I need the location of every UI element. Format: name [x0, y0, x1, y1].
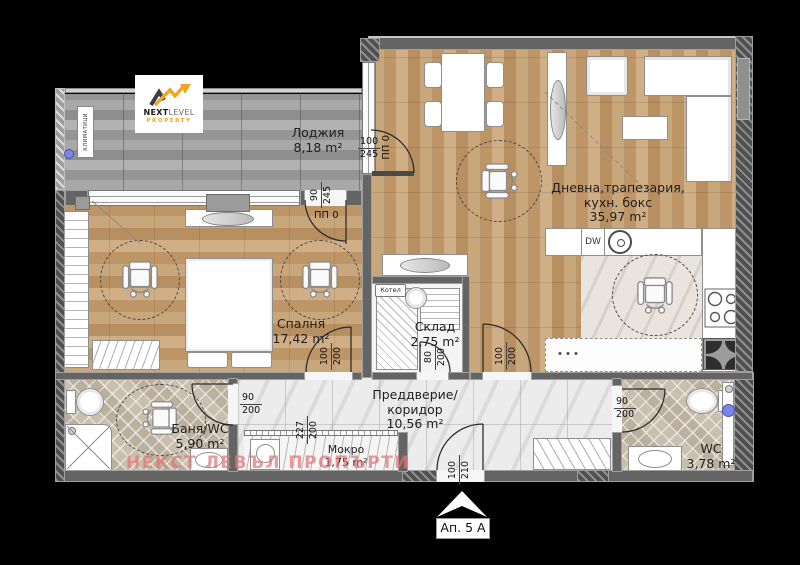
- living-name-line1: Дневна,трапезария,: [538, 181, 698, 196]
- dining-chair: [486, 62, 504, 88]
- shaft-water-point: [722, 404, 735, 417]
- wheelchair-icon: [301, 258, 339, 300]
- bedroom-label: Спалня 17,42 m²: [253, 317, 349, 346]
- logo-text-level: LEVEL: [169, 108, 195, 117]
- wall-bedroom-top-right: [346, 190, 362, 206]
- wc-label: WC 3,78 m²: [673, 442, 749, 471]
- logo-text-property: PROPERTY: [146, 118, 191, 124]
- pillow: [231, 352, 272, 368]
- dim-bathroom-door: 90200: [240, 392, 262, 416]
- apartment-unit-label: Ап. 5 А: [436, 518, 490, 539]
- hallway-name-line1: Преддверие/: [358, 388, 472, 403]
- tv-decor: [202, 212, 254, 226]
- wc-toilet-bowl: [686, 388, 718, 414]
- wall-wc-lower: [612, 432, 622, 472]
- loggia-parapet-top: [65, 88, 362, 93]
- dim-living-door: 100200: [495, 342, 518, 370]
- bathroom-area: 5,90 m²: [158, 437, 242, 452]
- dim-wc-door: 90200: [614, 396, 636, 420]
- dim-loggia-bedroom: 90245: [310, 182, 333, 208]
- wall-bottom-hatch: [577, 470, 609, 482]
- kitchen-sink: [608, 230, 632, 254]
- bedroom-wardrobe: [92, 340, 160, 370]
- floor-plan: DW Котел КЛИМАТИЦИ: [0, 0, 800, 565]
- dim-loggia-bedroom-note: ПП 0: [314, 210, 339, 221]
- shaft-valve: [725, 385, 733, 393]
- wall-storage-bottom-left: [372, 372, 417, 380]
- loggia-area: 8,18 m²: [268, 141, 368, 156]
- wheelchair-icon: [478, 162, 520, 200]
- opening-living-door: [483, 372, 531, 380]
- kitchen-base-cabinets: [545, 338, 702, 372]
- toilet-tank: [66, 390, 76, 414]
- dishwasher-label: DW: [585, 237, 601, 247]
- right-window-panel: [737, 58, 750, 120]
- boiler-unit: [405, 287, 427, 309]
- logo-arrow-icon: [144, 84, 194, 108]
- hallway-name-line2: коридор: [358, 403, 472, 418]
- ac-units-box: КЛИМАТИЦИ: [77, 106, 94, 158]
- opening-bathroom-door: [228, 384, 238, 424]
- loggia-water-point: [64, 149, 74, 159]
- dining-table: [441, 53, 485, 132]
- loggia-label: Лоджия 8,18 m²: [268, 126, 368, 155]
- wall-wc-stub: [612, 378, 622, 386]
- wall-left: [55, 190, 65, 482]
- wall-hall-top-a: [470, 372, 483, 380]
- wall-bedroom-bottom-right: [352, 372, 362, 380]
- sofa-chaise: [686, 96, 732, 182]
- wc-name: WC: [673, 442, 749, 457]
- armchair: [586, 56, 628, 96]
- wc-area: 3,78 m²: [673, 457, 749, 472]
- dim-wet-opening: 227200: [296, 416, 319, 444]
- wall-bedroom-bottom: [55, 372, 305, 380]
- toilet-bowl: [76, 388, 104, 416]
- storage-name: Склад: [398, 320, 472, 335]
- dining-chair: [424, 62, 442, 88]
- agency-logo: NEXTLEVEL PROPERTY: [135, 75, 203, 133]
- bedroom-name: Спалня: [253, 317, 349, 332]
- dim-storage-door: 80200: [424, 344, 447, 370]
- sofa: [644, 56, 732, 96]
- plant-decor: [550, 80, 566, 140]
- wall-storage-top: [372, 276, 470, 284]
- ac-units-label: КЛИМАТИЦИ: [83, 113, 89, 151]
- boiler-label: Котел: [375, 284, 406, 297]
- wall-hall-top-b: [531, 372, 753, 380]
- dim-entrance-door: 100210: [448, 455, 471, 485]
- living-name-line2: кухн. бокс: [538, 196, 698, 211]
- shower-head: [68, 427, 76, 435]
- coffee-table: [622, 116, 668, 140]
- wall-center: [362, 174, 372, 378]
- bathroom-label: Баня/WC 5,90 m²: [158, 422, 242, 451]
- radiator: [75, 196, 90, 210]
- opening-storage-door: [417, 372, 448, 380]
- dining-chair: [424, 101, 442, 127]
- dining-chair: [486, 101, 504, 127]
- dishwasher: DW: [581, 228, 605, 256]
- living-area: 35,97 m²: [538, 210, 698, 225]
- wheelchair-icon: [121, 258, 159, 300]
- hallway-wardrobe: [533, 438, 611, 470]
- living-room-label: Дневна,трапезария, кухн. бокс 35,97 m²: [538, 181, 698, 225]
- dim-bedroom-door: 100200: [320, 343, 343, 370]
- pillow: [187, 352, 228, 368]
- logo-text-next: NEXT: [144, 108, 169, 117]
- loggia-parapet-left: [55, 88, 65, 190]
- wall-top: [368, 36, 753, 50]
- radiator: [206, 194, 250, 212]
- dim-loggia-living: 100245: [358, 136, 380, 160]
- wc-sink-bowl: [638, 450, 672, 468]
- wheelchair-icon: [636, 274, 674, 316]
- entrance-arrow: [437, 491, 487, 517]
- loggia-name: Лоджия: [268, 126, 368, 141]
- bedroom-closet: [64, 211, 89, 368]
- watermark-text: НЕКСТ ЛЕВЪЛ ПРОПЪРТИ: [126, 453, 410, 473]
- bedroom-window: [88, 190, 300, 206]
- bowl-decor: [400, 258, 450, 273]
- dim-loggia-living-note: ПП 0: [381, 135, 392, 160]
- opening-bedroom-door: [305, 372, 352, 380]
- bathroom-name: Баня/WC: [158, 422, 242, 437]
- hallway-area: 10,56 m²: [358, 417, 472, 432]
- wall-storage-bottom-right: [448, 372, 470, 380]
- hallway-label: Преддверие/ коридор 10,56 m²: [358, 388, 472, 432]
- wall-corner-block: [360, 38, 380, 62]
